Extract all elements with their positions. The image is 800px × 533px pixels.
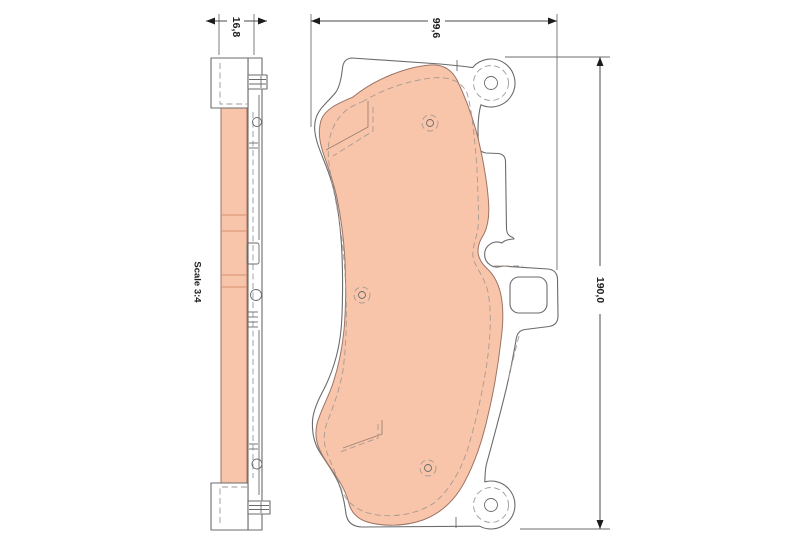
dimension-thickness: 16,8	[206, 14, 267, 55]
dimension-height-label: 190,0	[594, 277, 606, 303]
arrow-right-icon	[548, 18, 557, 25]
side-top-ear	[211, 58, 248, 108]
arrow-right-icon	[258, 18, 267, 25]
side-bottom-clip	[248, 501, 270, 514]
front-view	[312, 58, 558, 529]
lug-hole	[510, 277, 547, 313]
arrow-up-icon	[597, 57, 604, 66]
arrow-left-icon	[206, 18, 215, 25]
dimension-thickness-label: 16,8	[230, 17, 242, 38]
scale-label: Scale 3:4	[192, 261, 203, 303]
dimension-width-label: 99,6	[430, 18, 442, 39]
side-friction-material	[221, 108, 247, 483]
brake-pad-technical-drawing: 16,8 99,6 190,0 Scale 3:4	[0, 0, 800, 533]
side-bottom-ear	[211, 483, 248, 530]
side-top-clip	[248, 75, 267, 89]
drawing-canvas: 16,8 99,6 190,0 Scale 3:4	[0, 0, 800, 533]
side-view	[211, 58, 270, 530]
arrow-left-icon	[311, 18, 320, 25]
arrow-down-icon	[597, 520, 604, 529]
